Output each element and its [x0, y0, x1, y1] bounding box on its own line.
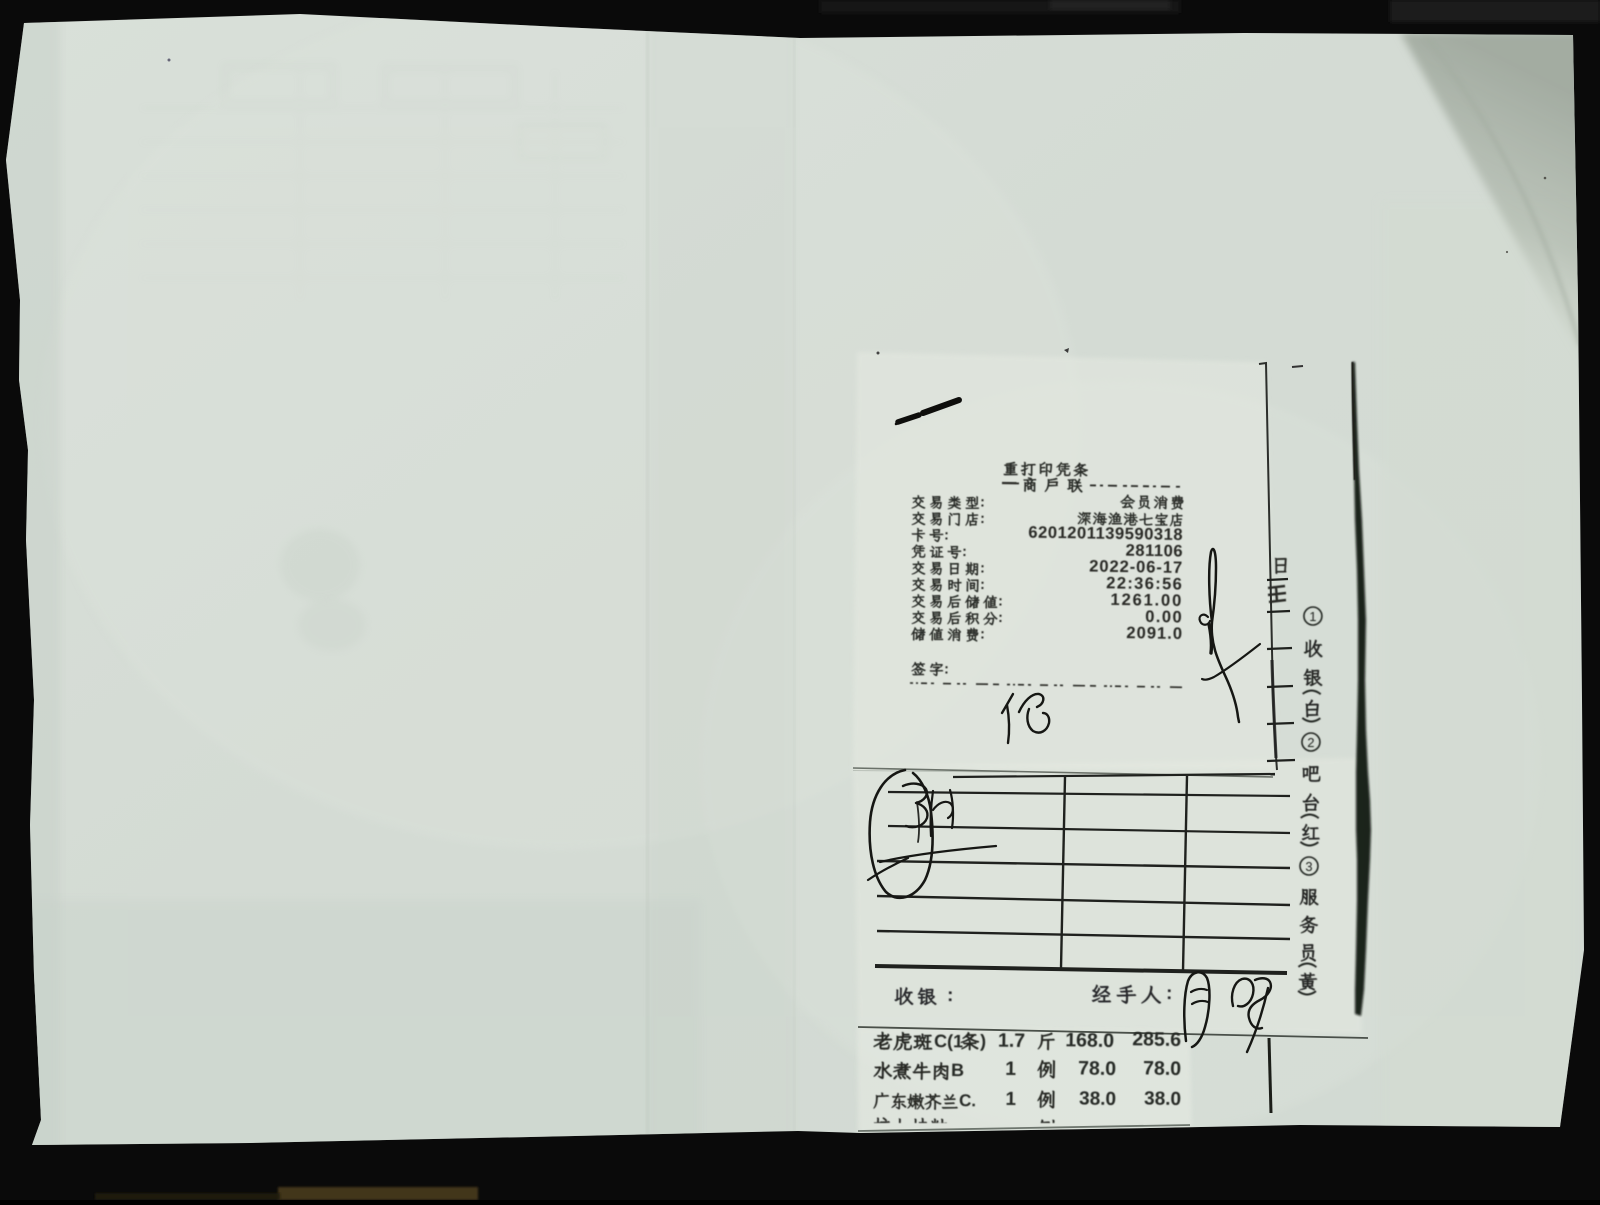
svg-text::: :	[980, 511, 985, 527]
svg-text::: :	[980, 561, 985, 577]
svg-text:2091.0: 2091.0	[1126, 623, 1183, 643]
svg-text:B: B	[951, 1060, 964, 1080]
svg-text:1: 1	[1005, 1089, 1016, 1110]
svg-text:2: 2	[1307, 735, 1314, 750]
svg-text:): )	[980, 1031, 986, 1051]
svg-text::: :	[980, 495, 985, 511]
svg-text:38.0: 38.0	[1144, 1088, 1181, 1110]
svg-text::: :	[947, 985, 954, 1006]
svg-text::: :	[980, 577, 985, 593]
svg-text:C(1: C(1	[934, 1031, 963, 1051]
svg-text:1: 1	[1309, 609, 1316, 624]
svg-text::: :	[998, 594, 1003, 610]
svg-text:3: 3	[1305, 859, 1312, 874]
svg-text:C.: C.	[959, 1091, 976, 1110]
svg-text:285.6: 285.6	[1132, 1028, 1181, 1051]
svg-text::: :	[944, 662, 949, 678]
svg-text::: :	[1166, 983, 1173, 1004]
svg-text:168.0: 168.0	[1065, 1029, 1114, 1052]
svg-text::: :	[944, 528, 949, 544]
svg-text::: :	[980, 627, 985, 643]
svg-text::: :	[998, 610, 1003, 626]
svg-text:1.7: 1.7	[998, 1030, 1025, 1052]
svg-text:78.0: 78.0	[1078, 1057, 1116, 1080]
svg-text:1: 1	[1005, 1058, 1016, 1080]
svg-text:38.0: 38.0	[1079, 1088, 1116, 1110]
svg-text:78.0: 78.0	[1143, 1057, 1181, 1080]
svg-text::: :	[962, 544, 967, 560]
